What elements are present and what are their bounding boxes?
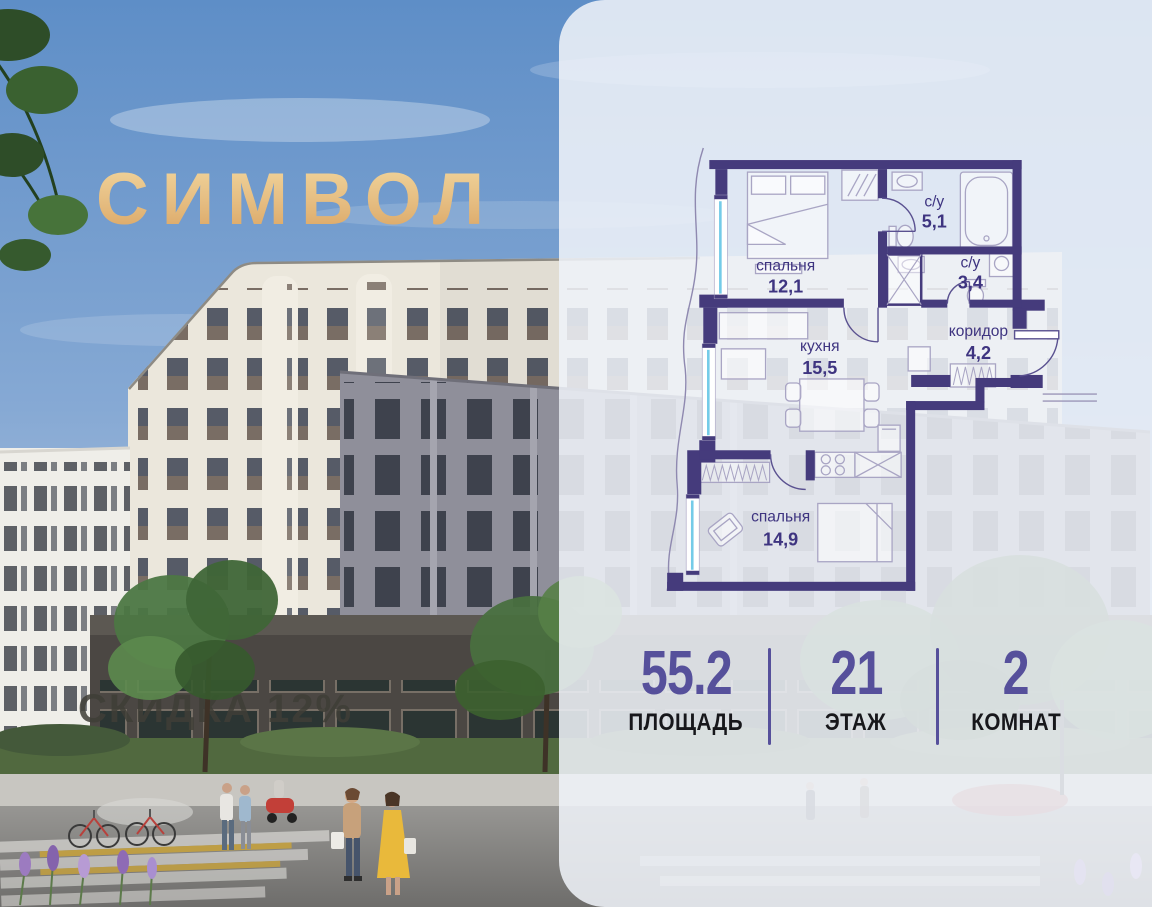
stat-floor-label: ЭТАЖ (825, 709, 886, 737)
stat-floor: 21 ЭТАЖ (771, 643, 941, 737)
floor-plan: спальня 12,1 с/у 5,1 с/у 3,4 кухня 15,5 … (647, 146, 1099, 628)
stat-floor-value: 21 (830, 643, 882, 705)
stat-rooms: 2 КОМНАТ (931, 643, 1101, 737)
stat-rooms-label: КОМНАТ (971, 709, 1061, 737)
room-name-bathroom-2: с/у (960, 255, 980, 272)
vent-shaft (887, 254, 921, 304)
brand-logo: СИМВОЛ (96, 159, 497, 240)
room-name-kitchen: кухня (800, 338, 840, 355)
listing-card: СКИДКА 12% (0, 0, 1152, 907)
room-area-bathroom-1: 5,1 (922, 211, 947, 231)
room-name-bathroom-1: с/у (924, 193, 944, 210)
apartment-stats: 55.2 ПЛОЩАДЬ 21 ЭТАЖ 2 КОМНАТ (559, 643, 1152, 763)
plan-windows (686, 195, 727, 575)
room-area-bathroom-2: 3,4 (958, 273, 983, 293)
stat-rooms-value: 2 (1003, 643, 1029, 705)
room-area-bedroom-1: 12,1 (768, 277, 803, 297)
room-name-corridor: коридор (949, 323, 1008, 340)
room-area-corridor: 4,2 (966, 343, 991, 363)
stat-area-label: ПЛОЩАДЬ (629, 709, 744, 737)
info-panel: спальня 12,1 с/у 5,1 с/у 3,4 кухня 15,5 … (559, 0, 1152, 907)
plan-furniture (699, 170, 1013, 562)
stat-area: 55.2 ПЛОЩАДЬ (601, 643, 771, 737)
stat-area-value: 55.2 (640, 643, 731, 705)
car-blur (97, 798, 193, 826)
room-area-kitchen: 15,5 (802, 358, 837, 378)
room-name-bedroom-2: спальня (751, 509, 810, 526)
room-name-bedroom-1: спальня (756, 258, 815, 275)
room-area-bedroom-2: 14,9 (763, 530, 798, 550)
